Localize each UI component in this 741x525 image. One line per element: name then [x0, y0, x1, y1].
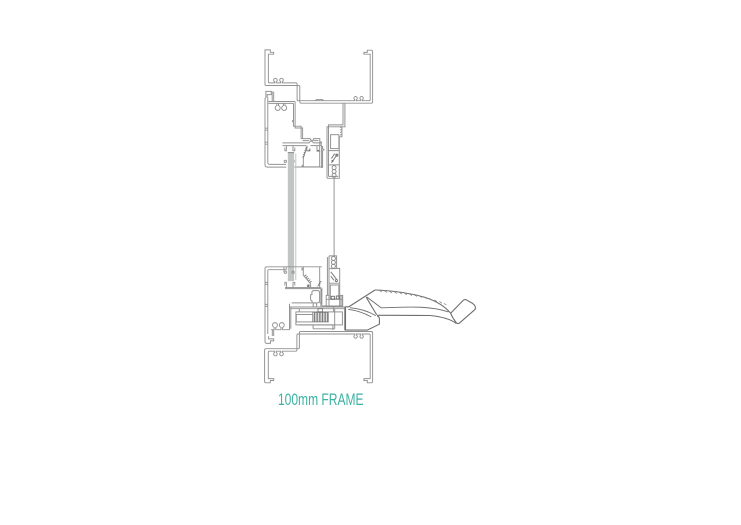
- svg-text:100mm FRAME: 100mm FRAME: [278, 391, 364, 409]
